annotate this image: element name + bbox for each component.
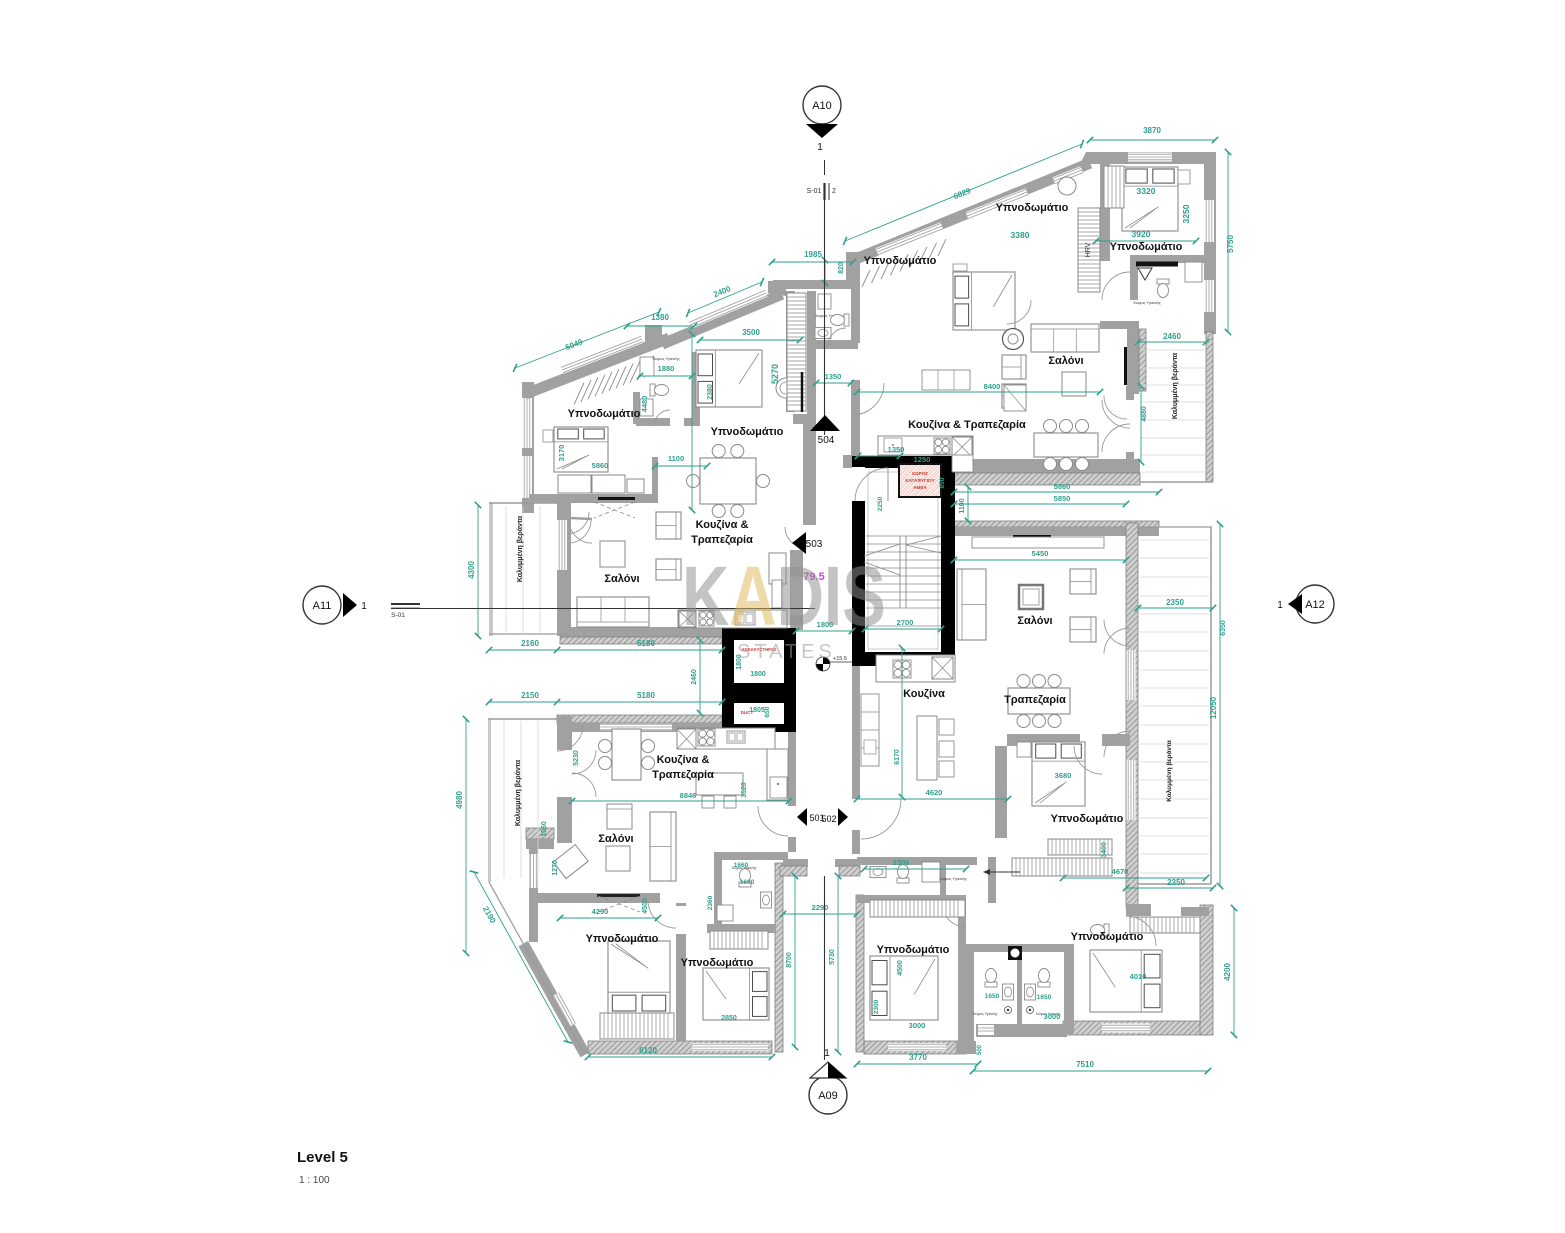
svg-text:S-01: S-01: [391, 612, 405, 619]
svg-text:1600: 1600: [740, 879, 755, 886]
svg-text:1060: 1060: [541, 821, 548, 837]
svg-text:850: 850: [939, 477, 946, 488]
svg-text:Υπνοδωμάτιο: Υπνοδωμάτιο: [1051, 813, 1124, 825]
svg-text:1: 1: [1277, 600, 1283, 611]
svg-text:5750: 5750: [1226, 235, 1235, 253]
svg-text:2290: 2290: [812, 903, 829, 912]
svg-text:1880: 1880: [658, 364, 675, 373]
svg-text:Κουζίνα: Κουζίνα: [903, 688, 945, 700]
svg-text:1800: 1800: [750, 671, 766, 678]
svg-text:5850: 5850: [1054, 494, 1071, 503]
svg-text:1100: 1100: [668, 454, 684, 463]
svg-text:ΑΜΕΑ: ΑΜΕΑ: [913, 485, 927, 490]
svg-text:1: 1: [824, 1048, 830, 1059]
svg-text:2350: 2350: [1166, 598, 1184, 607]
svg-text:Καλυμμένη βεράντα: Καλυμμένη βεράντα: [514, 759, 522, 826]
svg-text:4290: 4290: [592, 907, 609, 916]
svg-text:Σαλόνι: Σαλόνι: [598, 833, 633, 845]
svg-text:1 : 100: 1 : 100: [299, 1175, 330, 1186]
svg-text:KADIS: KADIS: [682, 549, 886, 643]
svg-text:Υπνοδωμάτιο: Υπνοδωμάτιο: [681, 957, 754, 969]
svg-text:5860: 5860: [592, 461, 609, 470]
svg-text:5860: 5860: [1054, 482, 1071, 491]
svg-text:Χώρος Υγιεινής: Χώρος Υγιεινής: [939, 876, 967, 881]
svg-text:2: 2: [832, 188, 836, 195]
svg-text:4880: 4880: [1141, 406, 1148, 422]
svg-text:4500: 4500: [897, 960, 904, 976]
svg-text:5230: 5230: [573, 750, 580, 766]
svg-text:1805: 1805: [749, 707, 765, 714]
svg-text:1270: 1270: [552, 860, 559, 876]
svg-text:Υπνοδωμάτιο: Υπνοδωμάτιο: [568, 408, 641, 420]
svg-text:3320: 3320: [1137, 186, 1156, 196]
svg-text:2250: 2250: [877, 496, 884, 511]
svg-text:4480: 4480: [640, 396, 649, 413]
svg-text:6120: 6120: [639, 1046, 657, 1055]
svg-text:Καλυμμένη βεράντα: Καλυμμένη βεράντα: [1171, 352, 1179, 419]
svg-text:500: 500: [977, 1044, 983, 1055]
svg-text:Χώρος Υγιεινής: Χώρος Υγιεινής: [732, 866, 757, 870]
svg-text:3250: 3250: [1181, 204, 1191, 223]
svg-text:Κουζίνα & Τραπεζαρία: Κουζίνα & Τραπεζαρία: [908, 419, 1026, 431]
svg-text:502: 502: [821, 814, 836, 824]
svg-text:2700: 2700: [897, 618, 914, 627]
svg-text:Σαλόνι: Σαλόνι: [604, 573, 639, 585]
svg-text:Υπνοδωμάτιο: Υπνοδωμάτιο: [1110, 241, 1183, 253]
svg-text:1: 1: [817, 142, 823, 153]
svg-text:4300: 4300: [467, 561, 476, 579]
svg-text:3000: 3000: [1044, 1012, 1061, 1021]
svg-text:STATES: STATES: [737, 641, 836, 663]
svg-text:5730: 5730: [829, 949, 836, 965]
svg-text:2150: 2150: [521, 691, 539, 700]
svg-text:2350: 2350: [1167, 878, 1185, 887]
svg-text:Καλυμμένη βεράντα: Καλυμμένη βεράντα: [1165, 740, 1173, 802]
svg-text:3680: 3680: [1055, 771, 1072, 780]
svg-text:Υπνοδωμάτιο: Υπνοδωμάτιο: [586, 933, 659, 945]
svg-text:4010: 4010: [1130, 972, 1147, 981]
svg-text:3400: 3400: [1101, 842, 1108, 858]
svg-text:6350: 6350: [1220, 620, 1227, 636]
svg-text:650: 650: [764, 706, 771, 717]
svg-text:3380: 3380: [1011, 230, 1030, 240]
svg-text:A10: A10: [812, 100, 832, 112]
svg-text:8700: 8700: [786, 952, 793, 968]
svg-text:1380: 1380: [651, 313, 669, 322]
svg-text:504: 504: [818, 435, 835, 446]
svg-text:Κουζίνα &: Κουζίνα &: [696, 519, 749, 531]
svg-text:Σαλόνι: Σαλόνι: [1017, 615, 1052, 627]
svg-text:HRV: HRV: [1085, 242, 1092, 257]
svg-text:6170: 6170: [894, 749, 901, 765]
svg-text:Level 5: Level 5: [297, 1149, 348, 1166]
svg-text:4620: 4620: [926, 788, 943, 797]
svg-text:Υπνοδωμάτιο: Υπνοδωμάτιο: [996, 202, 1069, 214]
svg-text:5450: 5450: [1032, 549, 1049, 558]
svg-text:3170: 3170: [557, 445, 566, 462]
svg-text:Τραπεζαρία: Τραπεζαρία: [652, 769, 714, 781]
svg-text:A12: A12: [1305, 599, 1325, 611]
svg-text:3920: 3920: [1132, 229, 1151, 239]
svg-text:Υπνοδωμάτιο: Υπνοδωμάτιο: [877, 944, 950, 956]
svg-text:Χώρος Υγιεινής: Χώρος Υγιεινής: [652, 356, 680, 361]
svg-text:820: 820: [838, 262, 845, 274]
svg-text:8400: 8400: [984, 382, 1001, 391]
svg-text:1985: 1985: [804, 250, 822, 259]
svg-text:7510: 7510: [1076, 1060, 1094, 1069]
svg-text:2460: 2460: [1163, 332, 1181, 341]
svg-text:Καλυμμένη βεράντα: Καλυμμένη βεράντα: [516, 515, 524, 582]
svg-text:1250: 1250: [914, 455, 931, 464]
svg-text:Υπνοδωμάτιο: Υπνοδωμάτιο: [864, 255, 937, 267]
svg-text:ΚΑΤΑΦΥΓΙΟΥ: ΚΑΤΑΦΥΓΙΟΥ: [905, 478, 934, 483]
svg-text:5180: 5180: [637, 691, 655, 700]
svg-text:1100: 1100: [959, 498, 966, 513]
svg-text:4200: 4200: [1223, 963, 1232, 981]
svg-text:3500: 3500: [742, 328, 760, 337]
svg-text:S-01: S-01: [807, 188, 822, 195]
svg-text:1650: 1650: [985, 993, 1000, 1000]
svg-text:1650: 1650: [1037, 994, 1052, 1001]
svg-text:3870: 3870: [1143, 126, 1161, 135]
svg-text:3000: 3000: [909, 1021, 926, 1030]
svg-text:2460: 2460: [691, 669, 698, 685]
svg-text:Κουζίνα &: Κουζίνα &: [657, 754, 710, 766]
svg-text:2360: 2360: [707, 895, 714, 910]
svg-text:1350: 1350: [825, 372, 842, 381]
svg-text:4980: 4980: [455, 791, 464, 809]
svg-text:2850: 2850: [721, 1015, 737, 1022]
svg-text:5180: 5180: [637, 639, 655, 648]
svg-text:1: 1: [361, 601, 367, 612]
svg-text:Υπνοδωμάτιο: Υπνοδωμάτιο: [1071, 931, 1144, 943]
svg-text:2300: 2300: [893, 858, 910, 867]
svg-text:Χώρος Υγιεινής: Χώρος Υγιεινής: [1133, 300, 1161, 305]
svg-text:A09: A09: [818, 1090, 838, 1102]
svg-text:Υπνοδωμάτιο: Υπνοδωμάτιο: [711, 426, 784, 438]
svg-text:3520: 3520: [741, 782, 748, 798]
svg-text:4670: 4670: [1112, 867, 1129, 876]
svg-text:4500: 4500: [642, 898, 649, 914]
svg-text:Τραπεζαρία: Τραπεζαρία: [691, 534, 753, 546]
svg-text:Τραπεζαρία: Τραπεζαρία: [1004, 694, 1066, 706]
svg-text:2160: 2160: [521, 639, 539, 648]
svg-text:3770: 3770: [909, 1053, 927, 1062]
svg-text:8846: 8846: [680, 791, 697, 800]
svg-text:2300: 2300: [873, 999, 880, 1014]
svg-text:Σαλόνι: Σαλόνι: [1048, 355, 1083, 367]
svg-text:1350: 1350: [888, 445, 905, 454]
svg-text:ΧΩΡΟΣ: ΧΩΡΟΣ: [912, 471, 928, 476]
svg-text:Χώρος Υγιεινής: Χώρος Υγιεινής: [973, 1012, 998, 1016]
svg-text:5270: 5270: [770, 364, 780, 384]
svg-text:12050: 12050: [1209, 696, 1218, 719]
svg-text:A11: A11: [313, 600, 332, 612]
svg-text:2380: 2380: [707, 384, 714, 400]
